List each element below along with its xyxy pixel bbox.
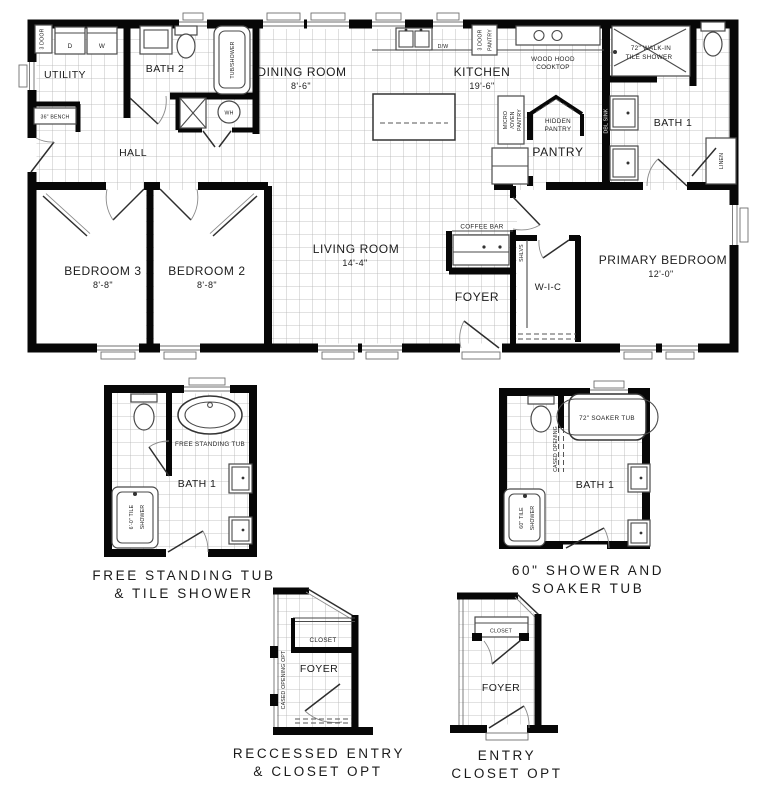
recessed-cased-opening-label: CASED OPENING OPT bbox=[281, 650, 287, 709]
opt-soaker-toilet-tank bbox=[528, 396, 554, 404]
bath1-toilet-tank bbox=[701, 22, 725, 31]
opt-tub-caption-2: & TILE SHOWER bbox=[114, 586, 253, 601]
free-standing-tub-label: FREE STANDING TUB bbox=[175, 441, 245, 448]
bedroom3-label: BEDROOM 3 bbox=[64, 264, 141, 278]
tub-shower-label: TUB/SHOWER bbox=[230, 41, 236, 78]
living-dim: 14'-4" bbox=[342, 258, 367, 268]
soaker-tub-label: 72" SOAKER TUB bbox=[579, 415, 635, 422]
dryer-label: D bbox=[68, 43, 73, 50]
option-recessed-entry: CLOSET FOYER CASED OPENING OPT RECCESSED… bbox=[233, 589, 405, 779]
bedroom2-dim: 8'-8" bbox=[197, 280, 217, 290]
shower-head bbox=[613, 50, 617, 54]
bench-label: 36" BENCH bbox=[40, 115, 69, 121]
micro-label-3: PANTRY bbox=[517, 109, 523, 131]
pantry-label: PANTRY bbox=[532, 145, 583, 159]
recessed-closet-label: CLOSET bbox=[310, 637, 337, 644]
opt-soaker-toilet bbox=[531, 406, 551, 432]
hidden-pantry-label-2: PANTRY bbox=[545, 126, 572, 133]
walkin-shower-label-2: TILE SHOWER bbox=[626, 54, 673, 61]
opt-tub-toilet bbox=[134, 404, 154, 430]
opt-tub-caption-1: FREE STANDING TUB bbox=[92, 568, 275, 583]
bedroom3-dim: 8'-8" bbox=[93, 280, 113, 290]
option-entry-closet: CLOSET FOYER ENTRY CLOSET OPT bbox=[450, 594, 563, 781]
pantry3-label-1: 3 DOOR bbox=[478, 29, 484, 50]
recessed-caption-2: & CLOSET OPT bbox=[253, 764, 382, 779]
linen-label: LINEN bbox=[719, 153, 725, 169]
opt-soaker-shower-label-1: 60" TILE bbox=[519, 507, 525, 529]
utility-label: UTILITY bbox=[44, 69, 86, 81]
linen3-label-1: 3 DOOR bbox=[40, 28, 46, 49]
dishwasher-label: D/W bbox=[438, 44, 449, 50]
opt-soaker-bath1-label: BATH 1 bbox=[576, 479, 614, 491]
micro-label-2: /OVEN bbox=[510, 111, 516, 128]
water-heater-label: WH bbox=[224, 111, 233, 117]
bath1-sink-1 bbox=[610, 96, 638, 130]
kitchen-dim: 19'-6" bbox=[469, 81, 494, 91]
wood-hood-label-2: COOKTOP bbox=[536, 64, 569, 71]
floor-plan-image: 3 DOOR LINEN D W UTILITY 36" BENCH TUB/S… bbox=[0, 0, 768, 791]
entry-caption-2: CLOSET OPT bbox=[451, 766, 562, 781]
bath1-sink-2 bbox=[610, 146, 638, 180]
primary-dim: 12'-0" bbox=[648, 269, 673, 279]
primary-label: PRIMARY BEDROOM bbox=[599, 253, 728, 267]
dining-label: DINING ROOM bbox=[257, 65, 346, 79]
walkin-shower-label-1: 72" WALK-IN bbox=[631, 45, 671, 52]
bedroom2-label: BEDROOM 2 bbox=[168, 264, 245, 278]
coffee-bar-label: COFFEE BAR bbox=[460, 224, 503, 231]
entry-closet-label: CLOSET bbox=[490, 629, 513, 635]
hidden-pantry-label-1: HIDDEN bbox=[545, 118, 571, 125]
wood-hood-label-1: WOOD HOOD bbox=[531, 56, 575, 63]
recessed-foyer-label: FOYER bbox=[300, 663, 338, 675]
kitchen-label: KITCHEN bbox=[454, 65, 511, 79]
bath2-label: BATH 2 bbox=[146, 63, 184, 75]
shelves-label: SHLVS bbox=[519, 244, 525, 262]
micro-label-1: MICRO bbox=[503, 111, 509, 129]
bath1-toilet bbox=[704, 32, 722, 56]
primary-carpet bbox=[517, 190, 734, 348]
opt-soaker-shower-label-2: SHOWER bbox=[530, 506, 536, 531]
opt-tub-toilet-tank bbox=[131, 394, 157, 402]
dbl-sink-label: DBL SINK bbox=[604, 108, 610, 133]
opt-tile-shower-label-1: 6'-0" TILE bbox=[129, 504, 135, 529]
option-free-standing-tub: FREE STANDING TUB BATH 1 6'-0" TILE SHOW… bbox=[92, 378, 275, 601]
wic-label: W-I-C bbox=[535, 282, 562, 293]
main-floor-plan: 3 DOOR LINEN D W UTILITY 36" BENCH TUB/S… bbox=[19, 13, 748, 359]
window-right-primary bbox=[730, 205, 749, 245]
opt-tub-window bbox=[184, 378, 230, 394]
cased-opening-label: CASED OPENING bbox=[553, 426, 559, 472]
window-left-utility bbox=[19, 62, 37, 90]
floor-plan-page: 3 DOOR LINEN D W UTILITY 36" BENCH TUB/S… bbox=[0, 0, 768, 791]
pantry3-label-2: PANTRY bbox=[488, 29, 494, 51]
entry-caption-1: ENTRY bbox=[478, 748, 537, 763]
bath2-toilet bbox=[177, 34, 195, 58]
kitchen-island bbox=[373, 94, 455, 140]
living-label: LIVING ROOM bbox=[313, 242, 400, 256]
wood-hood bbox=[516, 26, 600, 45]
opt-soaker-caption-1: 60" SHOWER AND bbox=[512, 563, 664, 578]
opt-tub-bath1-label: BATH 1 bbox=[178, 478, 216, 490]
recessed-caption-1: RECCESSED ENTRY bbox=[233, 746, 405, 761]
option-soaker-tub: CASED OPENING 72" SOAKER TUB BATH 1 60" … bbox=[503, 381, 664, 596]
entry-foyer-label: FOYER bbox=[482, 682, 520, 694]
opt-tile-shower bbox=[112, 487, 158, 548]
opt-tile-shower-label-2: SHOWER bbox=[140, 505, 146, 530]
foyer-label: FOYER bbox=[455, 290, 499, 304]
dining-dim: 8'-6" bbox=[291, 81, 311, 91]
coffee-bar-counter bbox=[453, 235, 509, 265]
washer-label: W bbox=[99, 43, 105, 50]
opt-soaker-caption-2: SOAKER TUB bbox=[532, 581, 645, 596]
bath1-label: BATH 1 bbox=[654, 117, 692, 129]
hall-label: HALL bbox=[119, 147, 147, 159]
